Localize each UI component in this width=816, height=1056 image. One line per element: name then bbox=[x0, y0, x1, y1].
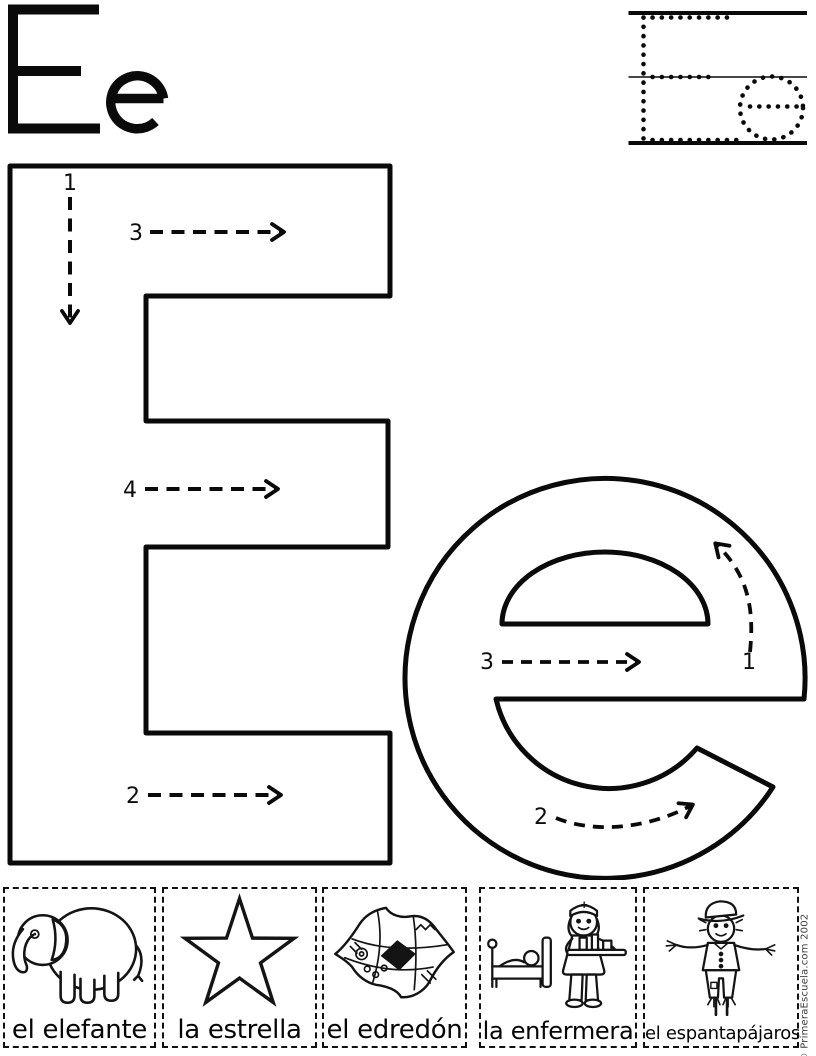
stroke-number-4: 4 bbox=[123, 478, 137, 503]
stroke-number-3: 3 bbox=[129, 221, 143, 246]
copyright-text: © PrimeraEscuela.com 2002 bbox=[800, 914, 811, 1056]
worksheet-page: 1 3 4 2 1 3 2 bbox=[0, 0, 816, 1056]
quilt-image bbox=[324, 890, 465, 1016]
card-edredon: el edredón bbox=[322, 887, 467, 1048]
card-label: el edredón bbox=[324, 1017, 465, 1043]
card-elefante: el elefante bbox=[3, 887, 156, 1048]
card-estrella: la estrella bbox=[162, 887, 317, 1048]
title-letter-E bbox=[9, 5, 101, 134]
stroke-number-1: 1 bbox=[63, 171, 77, 196]
stroke-number-1: 1 bbox=[742, 650, 756, 675]
title-letters bbox=[9, 5, 164, 134]
card-espantapajaros: el espantapájaros bbox=[643, 887, 799, 1048]
star-image bbox=[164, 890, 315, 1016]
trace-practice-box bbox=[629, 13, 808, 143]
scarecrow-image bbox=[645, 890, 797, 1016]
title-letter-e bbox=[111, 76, 164, 129]
stroke-number-2: 2 bbox=[126, 784, 140, 809]
stroke-number-2: 2 bbox=[534, 805, 548, 830]
card-enfermera: la enfermera bbox=[479, 887, 637, 1048]
trace-letter-E bbox=[644, 18, 739, 141]
trace-letter-e bbox=[740, 77, 803, 140]
card-label: la enfermera bbox=[481, 1019, 635, 1043]
lowercase-letter-outline: 1 3 2 bbox=[405, 478, 805, 878]
card-label: el elefante bbox=[5, 1017, 154, 1043]
letter-art: 1 3 4 2 1 3 2 bbox=[0, 0, 816, 880]
nurse-image bbox=[481, 890, 635, 1016]
stroke-number-3: 3 bbox=[480, 650, 494, 675]
card-label: la estrella bbox=[164, 1017, 315, 1043]
uppercase-letter-outline: 1 3 4 2 bbox=[10, 166, 390, 863]
lowercase-e-shape bbox=[405, 478, 805, 878]
uppercase-E-shape bbox=[10, 166, 390, 863]
elephant-image bbox=[5, 890, 154, 1016]
card-label: el espantapájaros bbox=[645, 1025, 797, 1043]
